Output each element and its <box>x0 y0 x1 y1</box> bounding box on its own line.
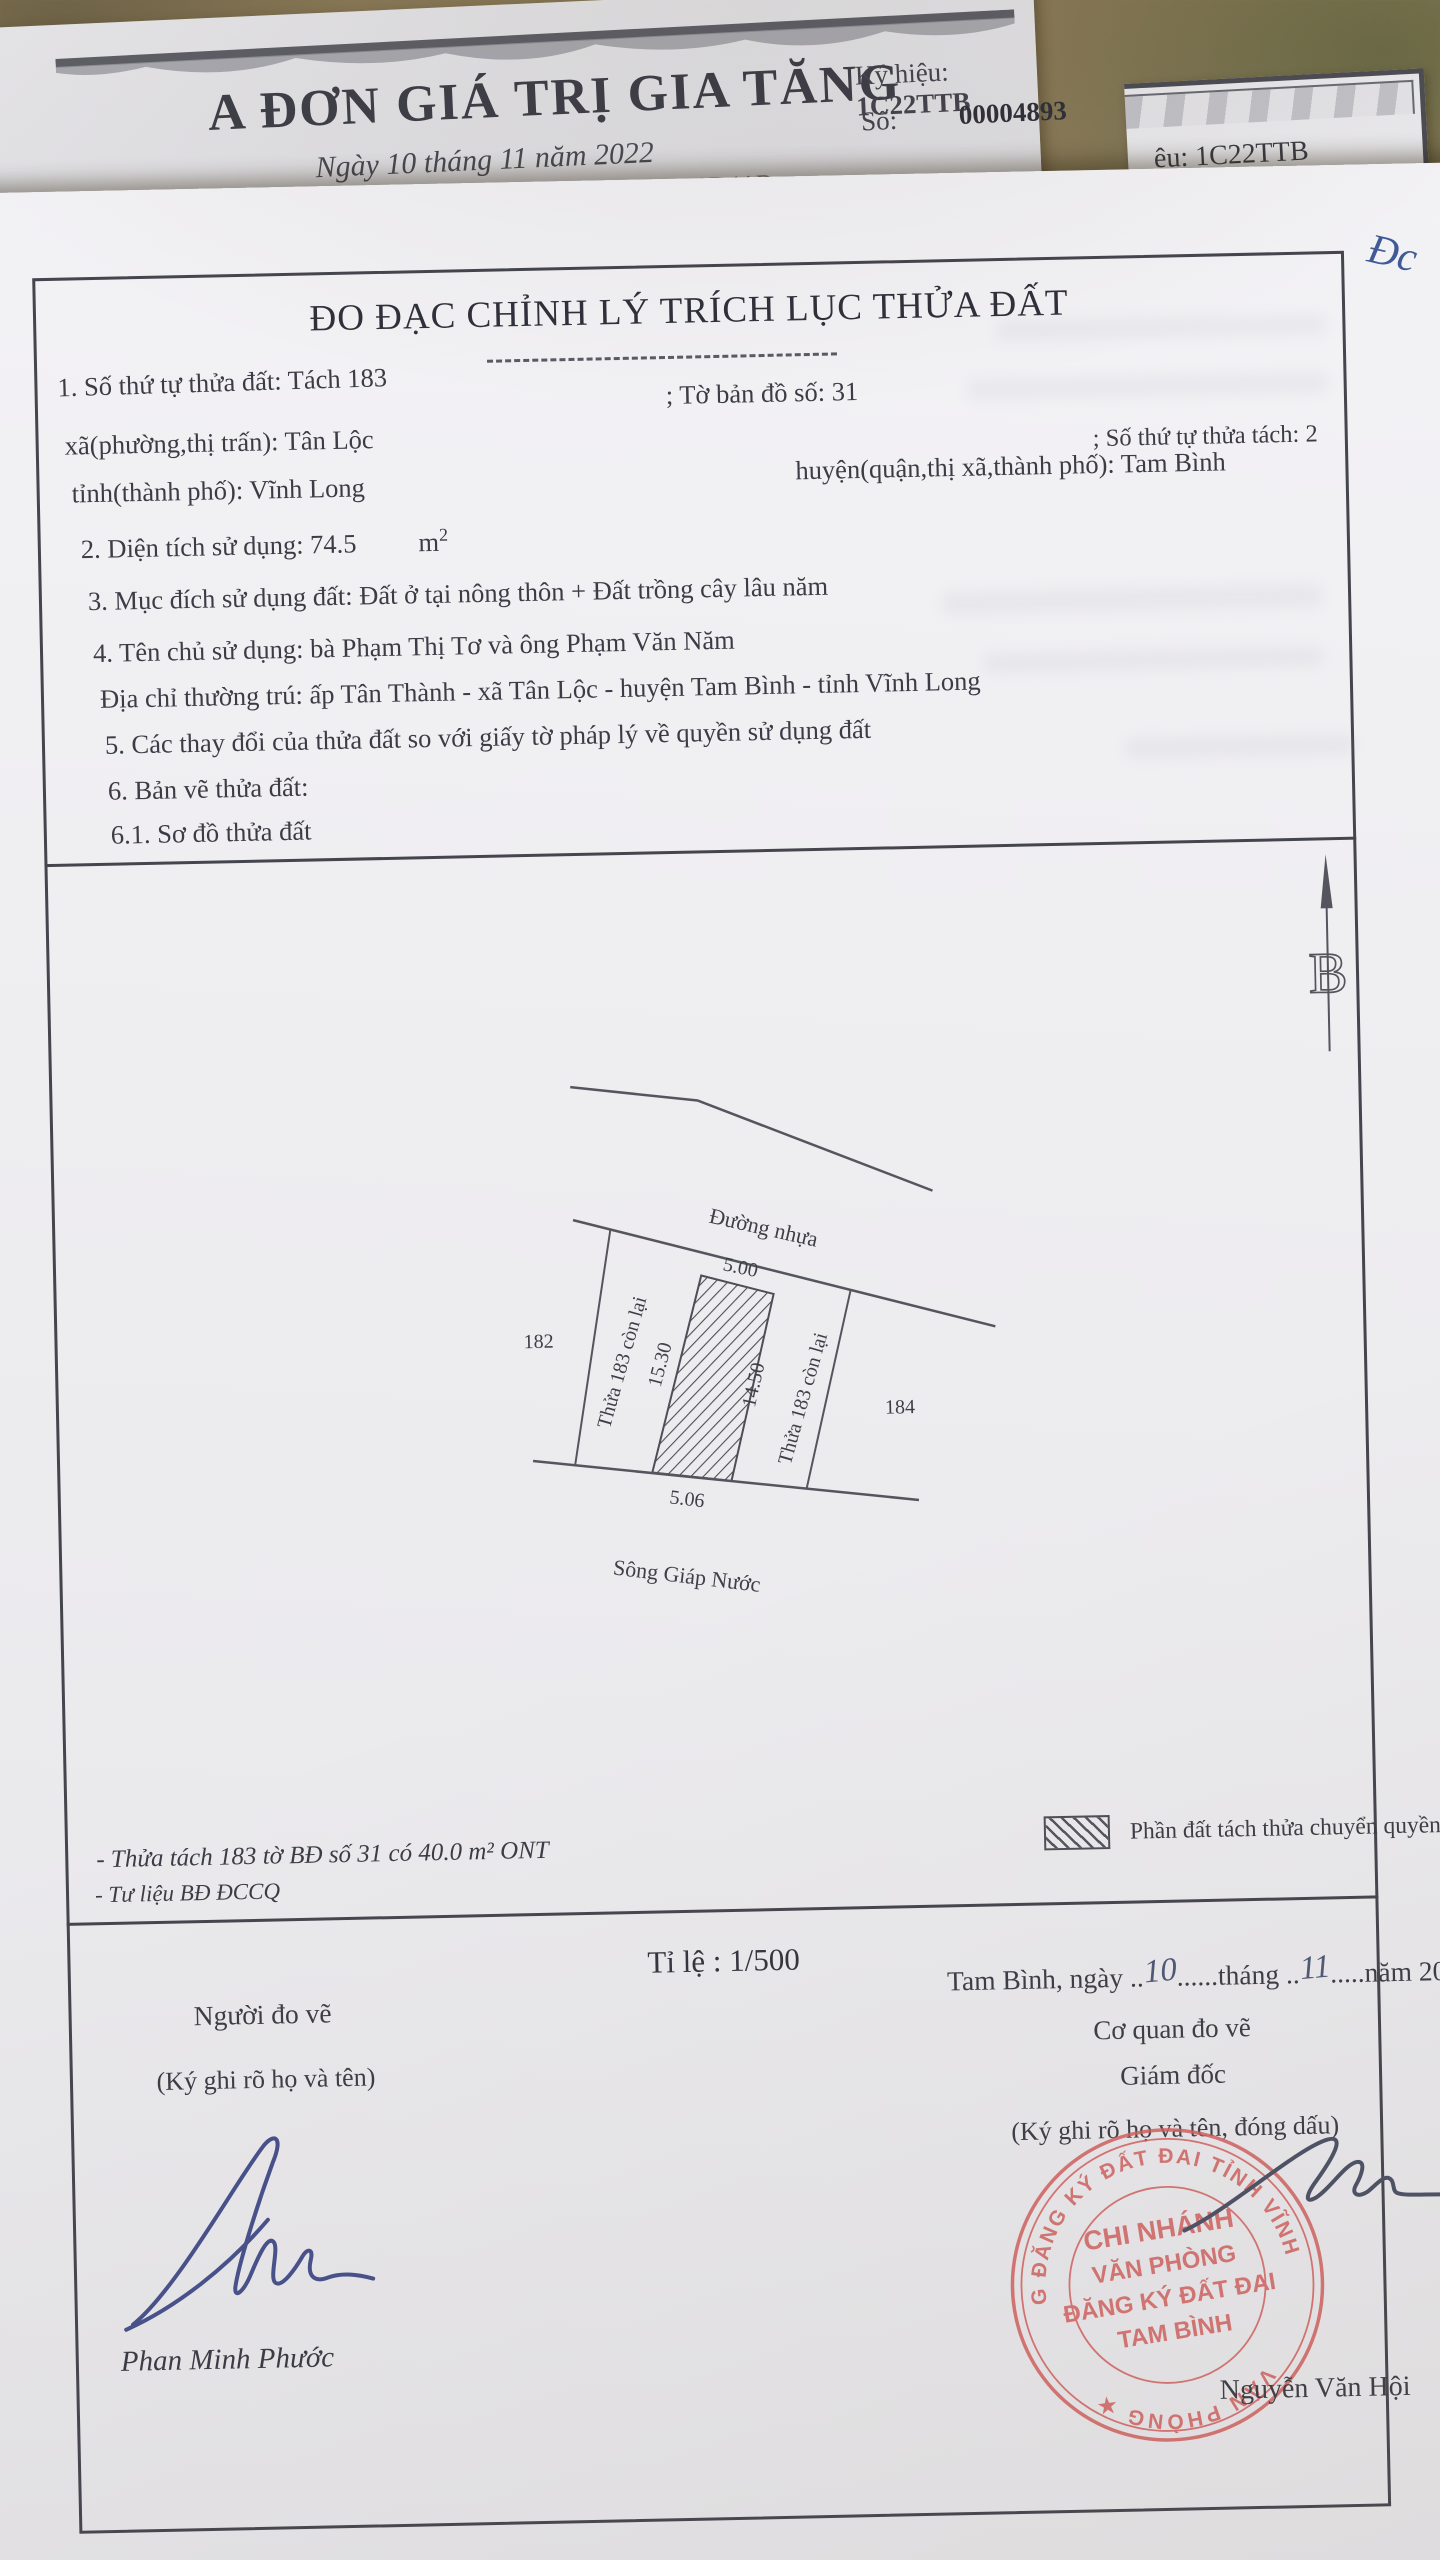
north-arrow-head <box>1320 854 1333 908</box>
handwritten-corner-mark: Đc <box>1363 225 1421 283</box>
ink-bleed-smudge <box>968 372 1328 400</box>
document-frame: ĐO ĐẠC CHỈNH LÝ TRÍCH LỤC THỬA ĐẤT 1. Số… <box>32 251 1391 2534</box>
dimension-left: 15.30 <box>644 1340 677 1389</box>
info-land-use-purpose: 3. Mục đích sử dụng đất: Đất ở tại nông … <box>88 571 829 617</box>
info-parcel-number: 1. Số thứ tự thửa đất: Tách 183 <box>57 362 387 403</box>
info-map-sheet: ; Tờ bản đồ số: 31 <box>665 376 858 411</box>
surveyor-sign-note: (Ký ghi rõ họ và tên) <box>101 2061 432 2098</box>
info-area-unit: m <box>418 527 439 557</box>
ink-bleed-smudge <box>942 584 1322 614</box>
title-dashed-underline <box>487 352 837 362</box>
director-label: Giám đốc <box>1003 2056 1344 2094</box>
parcel-sketch: Đường nhựa 5.00 Thửa 183 còn lại 15.30 1… <box>510 1055 1047 1690</box>
date-prefix: Tam Bình, ngày .. <box>947 1961 1144 1996</box>
date-mid: ......tháng .. <box>1176 1958 1300 1992</box>
dimension-top: 5.00 <box>721 1253 760 1282</box>
info-commune: xã(phường,thị trấn): Tân Lộc <box>64 424 374 461</box>
footnote-map-source: - Tư liệu BĐ ĐCCQ <box>95 1878 281 1908</box>
river-label: Sông Giáp Nước <box>612 1555 762 1597</box>
director-name: Nguyễn Văn Hội <box>1219 2371 1410 2407</box>
north-letter: B <box>1308 940 1348 1006</box>
info-changes-clause: 5. Các thay đổi của thửa đất so với giấy… <box>105 714 872 761</box>
legend-label: Phần đất tách thửa chuyển quyền <box>1130 1812 1440 1846</box>
invoice-number-value: 00004893 <box>958 95 1067 131</box>
surveyor-label: Người đo vẽ <box>137 1996 388 2033</box>
photo-of-land-document: { "photo": { "corner_scribble": "Đc" }, … <box>0 0 1440 2560</box>
info-owner-address: Địa chỉ thường trú: ấp Tân Thành - xã Tâ… <box>100 665 981 714</box>
handwritten-day: 10 <box>1142 1952 1178 1992</box>
surveying-agency-label: Cơ quan đo vẽ <box>1002 2010 1343 2048</box>
legend-hatch-swatch <box>1044 1815 1111 1850</box>
neighbor-parcel-184: 184 <box>885 1396 915 1419</box>
ink-bleed-smudge <box>983 646 1323 673</box>
left-remainder-parcel-label: Thửa 183 còn lại <box>593 1294 651 1431</box>
info-drawing-heading: 6. Bản vẽ thửa đất: <box>108 772 309 807</box>
surveyor-name: Phan Minh Phước <box>121 2341 335 2378</box>
info-area: 2. Diện tích sử dụng: 74.5m2 <box>81 525 449 566</box>
handwritten-month: 11 <box>1298 1948 1332 1988</box>
road-far-edge <box>570 1080 932 1199</box>
footnote-split-parcel: - Thửa tách 183 tờ BĐ số 31 có 40.0 m² O… <box>96 1837 549 1874</box>
invoice-symbol-label: Ký hiệu: <box>854 56 949 90</box>
survey-document-sheet: Đc ĐO ĐẠC CHỈNH LÝ TRÍCH LỤC THỬA ĐẤT 1.… <box>0 162 1440 2560</box>
ink-bleed-smudge <box>1125 734 1355 759</box>
surveyor-signature <box>114 2114 389 2340</box>
info-owner-names: 4. Tên chủ sử dụng: bà Phạm Thị Tơ và ôn… <box>93 625 735 669</box>
info-sketch-heading: 6.1. Sơ đồ thửa đất <box>111 816 312 851</box>
right-remainder-parcel-label: Thửa 183 còn lại <box>774 1330 832 1467</box>
north-arrow: B <box>1285 845 1369 1059</box>
dimension-bottom: 5.06 <box>668 1486 705 1512</box>
invoice-number-label: Số: <box>860 105 897 138</box>
info-area-text: 2. Diện tích sử dụng: 74.5 <box>81 528 357 564</box>
second-invoice-ornament <box>1125 80 1415 129</box>
info-province: tỉnh(thành phố): Vĩnh Long <box>71 472 365 509</box>
date-suffix: .....năm 2022 <box>1330 1954 1440 1988</box>
info-district: huyện(quận,thị xã,thành phố): Tam Bình <box>795 446 1226 486</box>
director-signature <box>1172 2119 1440 2276</box>
info-area-exponent: 2 <box>439 525 448 545</box>
neighbor-parcel-182: 182 <box>523 1331 553 1354</box>
road-label: Đường nhựa <box>707 1203 821 1252</box>
